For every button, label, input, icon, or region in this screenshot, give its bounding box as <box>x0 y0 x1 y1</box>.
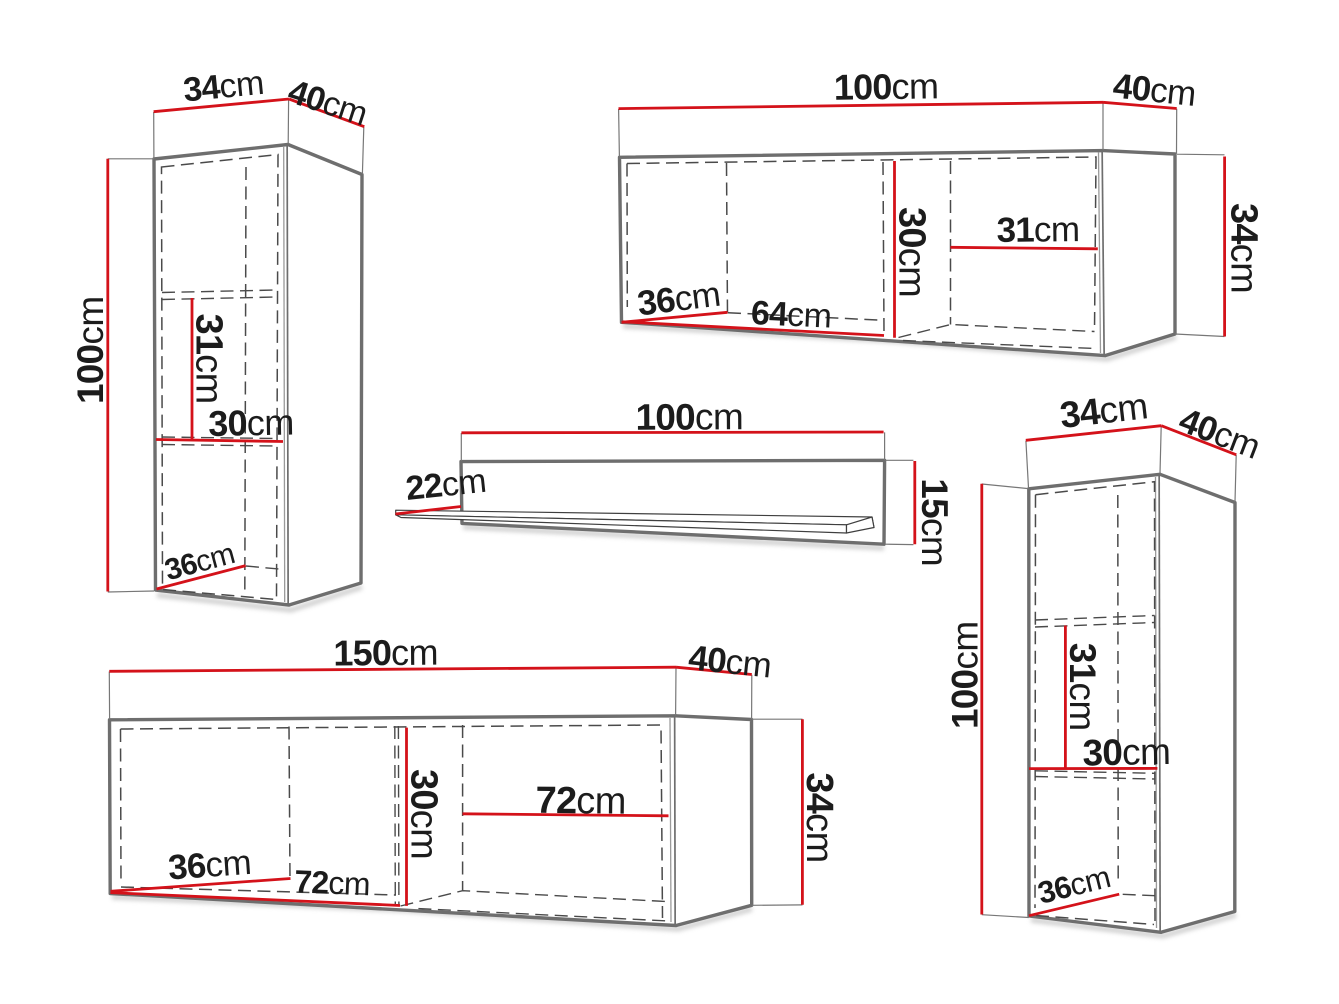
svg-text:72cm: 72cm <box>535 780 626 823</box>
svg-text:64cm: 64cm <box>750 294 832 336</box>
svg-text:34cm: 34cm <box>798 772 840 862</box>
svg-text:31cm: 31cm <box>188 314 230 404</box>
svg-text:34cm: 34cm <box>182 64 266 110</box>
svg-text:150cm: 150cm <box>333 632 438 674</box>
svg-text:100cm: 100cm <box>70 296 111 404</box>
svg-text:100cm: 100cm <box>945 621 986 729</box>
svg-text:100cm: 100cm <box>834 65 939 107</box>
svg-text:36cm: 36cm <box>167 843 253 888</box>
svg-text:15cm: 15cm <box>914 478 955 566</box>
svg-text:31cm: 31cm <box>1062 643 1103 731</box>
svg-text:30cm: 30cm <box>1082 731 1171 774</box>
svg-text:30cm: 30cm <box>208 402 294 444</box>
svg-text:34cm: 34cm <box>1223 203 1265 293</box>
svg-text:72cm: 72cm <box>294 863 371 902</box>
svg-text:100cm: 100cm <box>635 396 743 438</box>
svg-text:30cm: 30cm <box>891 207 933 297</box>
svg-text:31cm: 31cm <box>996 210 1079 250</box>
svg-text:30cm: 30cm <box>403 769 445 859</box>
